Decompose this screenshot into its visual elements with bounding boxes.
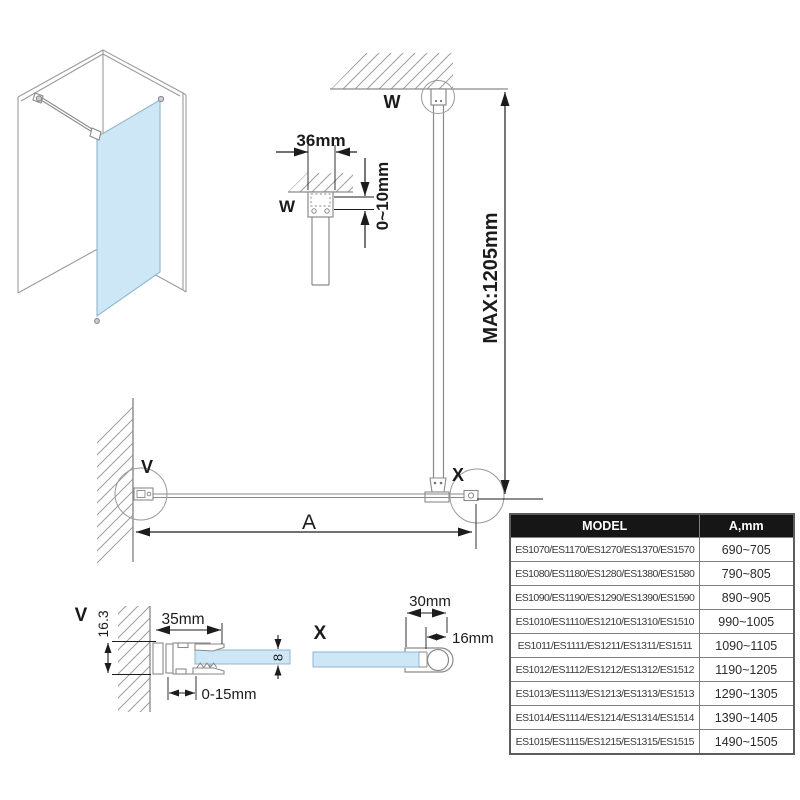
detail-x — [313, 613, 453, 672]
table-header-amm: A,mm — [699, 514, 794, 538]
model-cell: ES1015/ES1115/ES1215/ES1315/ES1515 — [510, 730, 699, 755]
dim-8-label: 8 — [271, 654, 286, 661]
model-cell: ES1012/ES1112/ES1212/ES1312/ES1512 — [510, 658, 699, 682]
table-row: ES1012/ES1112/ES1212/ES1312/ES1512 1190~… — [510, 658, 794, 682]
bar-glass-clamp-iso — [90, 128, 101, 140]
dim-35mm-label: 35mm — [161, 611, 204, 628]
table-row: ES1080/ES1180/ES1280/ES1380/ES1580 790~8… — [510, 562, 794, 586]
amm-cell: 1490~1505 — [699, 730, 794, 755]
table-header-model: MODEL — [510, 514, 699, 538]
dim-a-label: A — [302, 511, 316, 534]
model-cell: ES1013/ES1113/ES1213/ES1313/ES1513 — [510, 682, 699, 706]
dim-gap-label: 0~10mm — [373, 162, 392, 231]
amm-cell: 990~1005 — [699, 610, 794, 634]
model-cell: ES1080/ES1180/ES1280/ES1380/ES1580 — [510, 562, 699, 586]
table-row: ES1011/ES1111/ES1211/ES1311/ES1511 1090~… — [510, 634, 794, 658]
isometric-view — [18, 50, 186, 323]
amm-cell: 890~905 — [699, 586, 794, 610]
table-row: ES1013/ES1113/ES1213/ES1313/ES1513 1290~… — [510, 682, 794, 706]
amm-cell: 1290~1305 — [699, 682, 794, 706]
bar-glass-clamp — [430, 478, 446, 492]
table-row: ES1070/ES1170/ES1270/ES1370/ES1570 690~7… — [510, 538, 794, 562]
amm-cell: 1090~1105 — [699, 634, 794, 658]
amm-cell: 1190~1205 — [699, 658, 794, 682]
dim-max-label: MAX:1205mm — [480, 212, 502, 343]
dim-015mm-label: 0-15mm — [201, 686, 256, 703]
table-row: ES1010/ES1110/ES1210/ES1310/ES1510 990~1… — [510, 610, 794, 634]
label-w-detail: W — [279, 197, 296, 216]
label-x-detail: X — [314, 623, 327, 644]
table-row: ES1015/ES1115/ES1215/ES1315/ES1515 1490~… — [510, 730, 794, 755]
end-profile-tube — [428, 650, 449, 671]
glass-section-x — [313, 652, 419, 667]
table-header-row: MODEL A,mm — [510, 514, 794, 538]
model-cell: ES1011/ES1111/ES1211/ES1311/ES1511 — [510, 634, 699, 658]
table-row: ES1014/ES1114/ES1214/ES1314/ES1514 1390~… — [510, 706, 794, 730]
model-cell: ES1070/ES1170/ES1270/ES1370/ES1570 — [510, 538, 699, 562]
amm-cell: 1390~1405 — [699, 706, 794, 730]
table-row: ES1090/ES1190/ES1290/ES1390/ES1590 890~9… — [510, 586, 794, 610]
dim-163-label: 16.3 — [95, 610, 111, 637]
end-cap-plan — [464, 491, 478, 501]
amm-cell: 690~705 — [699, 538, 794, 562]
ceiling-hatch — [331, 53, 453, 89]
model-cell: ES1010/ES1110/ES1210/ES1310/ES1510 — [510, 610, 699, 634]
label-v-plan: V — [141, 457, 153, 477]
detail-w-bracket — [308, 192, 333, 217]
model-cell: ES1090/ES1190/ES1290/ES1390/ES1590 — [510, 586, 699, 610]
model-table: MODEL A,mm ES1070/ES1170/ES1270/ES1370/E… — [509, 513, 795, 755]
dim-16mm-label: 16mm — [452, 630, 494, 647]
glass-panel-iso — [97, 100, 160, 316]
label-w-top: W — [384, 92, 401, 112]
detail-v-wall-hatch — [118, 606, 150, 712]
ceiling-bracket — [431, 89, 446, 105]
wall-hatch-plan — [97, 400, 133, 564]
dim-36mm-label: 36mm — [296, 131, 345, 150]
label-x-plan: X — [452, 465, 464, 485]
amm-cell: 790~805 — [699, 562, 794, 586]
label-v-detail: V — [75, 605, 88, 626]
detail-w-ceiling-hatch — [288, 173, 353, 192]
model-cell: ES1014/ES1114/ES1214/ES1314/ES1514 — [510, 706, 699, 730]
dim-30mm-label: 30mm — [409, 593, 451, 610]
technical-drawing-page: W 36mm W 0~10mm MAX:1205mm V X A V 16.3 … — [0, 0, 800, 800]
